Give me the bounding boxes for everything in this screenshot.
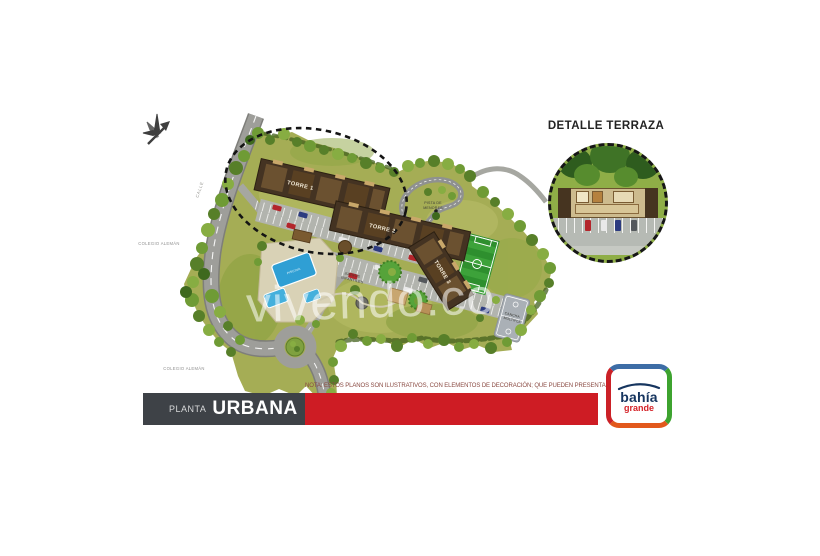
tree (208, 208, 220, 220)
tree (454, 342, 464, 352)
tree (215, 193, 229, 207)
tree (544, 278, 554, 288)
tree (265, 135, 275, 145)
tree (257, 241, 267, 251)
car (615, 220, 621, 231)
tree (348, 329, 358, 339)
tree (295, 315, 305, 325)
parking-stalls (551, 218, 665, 234)
tree (335, 340, 347, 352)
building-end-cap (558, 188, 570, 219)
tree (477, 186, 489, 198)
tree (514, 220, 526, 232)
terrace-corridor (575, 204, 638, 213)
tree (414, 297, 422, 305)
tree (526, 305, 536, 315)
tree (375, 163, 385, 173)
tree (203, 324, 215, 336)
terrace-room (613, 191, 634, 203)
tree (442, 158, 454, 170)
tree (336, 254, 344, 262)
tree (226, 347, 236, 357)
tree (222, 178, 234, 190)
tree (201, 223, 215, 237)
compass-icon (143, 114, 170, 144)
tree (544, 262, 556, 274)
car (585, 220, 591, 231)
red-banner (305, 393, 598, 425)
tree (312, 320, 320, 328)
tree (198, 268, 210, 280)
context-label-upper: COLEGIO ALEMÁN (138, 241, 179, 246)
tree (304, 140, 316, 152)
tree (534, 290, 546, 302)
tree (391, 340, 403, 352)
tree (407, 333, 417, 343)
tree (214, 306, 226, 318)
tree (180, 286, 192, 298)
tree (196, 242, 208, 254)
tree (448, 192, 456, 200)
logo-brand-subname: grande (624, 404, 654, 413)
tree (187, 276, 199, 288)
tree (205, 289, 219, 303)
tree (502, 208, 514, 220)
tree (360, 157, 372, 169)
tree (319, 145, 329, 155)
terrace-floorplan (559, 188, 657, 218)
tree (476, 314, 484, 322)
tree (423, 339, 433, 349)
tree (350, 285, 360, 295)
plan-name-label: URBANA (212, 398, 297, 420)
tree (432, 212, 440, 220)
tree (290, 341, 296, 347)
detail-inset-circle (548, 143, 668, 263)
tree (464, 170, 476, 182)
tree (526, 234, 538, 246)
tree (438, 334, 450, 346)
tree (515, 324, 527, 336)
tree (254, 258, 262, 266)
building-end-cap (645, 188, 657, 219)
tree-blob (574, 164, 600, 186)
tree (537, 248, 549, 260)
brand-logo: bahía grande (606, 364, 672, 428)
plan-title-banner: PLANTA URBANA (143, 393, 305, 425)
tree (294, 346, 300, 352)
tree (428, 155, 440, 167)
tree (238, 150, 250, 162)
detail-inset-title: DETALLE TERRAZA (540, 120, 672, 132)
tree (235, 335, 245, 345)
car (601, 220, 607, 231)
terrace-room (592, 191, 604, 203)
plan-type-label: PLANTA (169, 404, 206, 414)
tree (438, 186, 446, 194)
tree (332, 148, 344, 160)
tree (388, 268, 396, 276)
tree (223, 321, 233, 331)
tree (469, 339, 479, 349)
tree (362, 336, 372, 346)
tree (502, 337, 512, 347)
site-plan-illustration: TORRE 1 TORRE 2 TORRE 3 PISTA DE MENORES… (0, 0, 820, 556)
tree (347, 153, 357, 163)
tree-blob (614, 167, 638, 187)
tree (402, 160, 414, 172)
tree (328, 357, 338, 367)
disclaimer-note: NOTA: ESTOS PLANOS SON ILUSTRATIVOS, CON… (305, 383, 600, 389)
car (631, 220, 637, 231)
detail-road (551, 246, 665, 255)
tree (485, 342, 497, 354)
tree (424, 188, 432, 196)
tree (492, 296, 500, 304)
tree (193, 310, 205, 322)
tree (490, 197, 500, 207)
tree (455, 164, 465, 174)
tree (292, 137, 302, 147)
context-label-lower: COLEGIO ALEMÁN (163, 366, 204, 371)
track-label-line1: PISTA DE (424, 201, 442, 205)
page: TORRE 1 TORRE 2 TORRE 3 PISTA DE MENORES… (0, 0, 820, 556)
terrace-room (576, 191, 588, 203)
street-label: CALLE (195, 181, 205, 199)
tree (229, 161, 243, 175)
track-label-line2: MENORES (423, 206, 443, 210)
detail-parking (551, 218, 665, 247)
tree (376, 334, 386, 344)
tree (214, 337, 224, 347)
tree (415, 158, 425, 168)
